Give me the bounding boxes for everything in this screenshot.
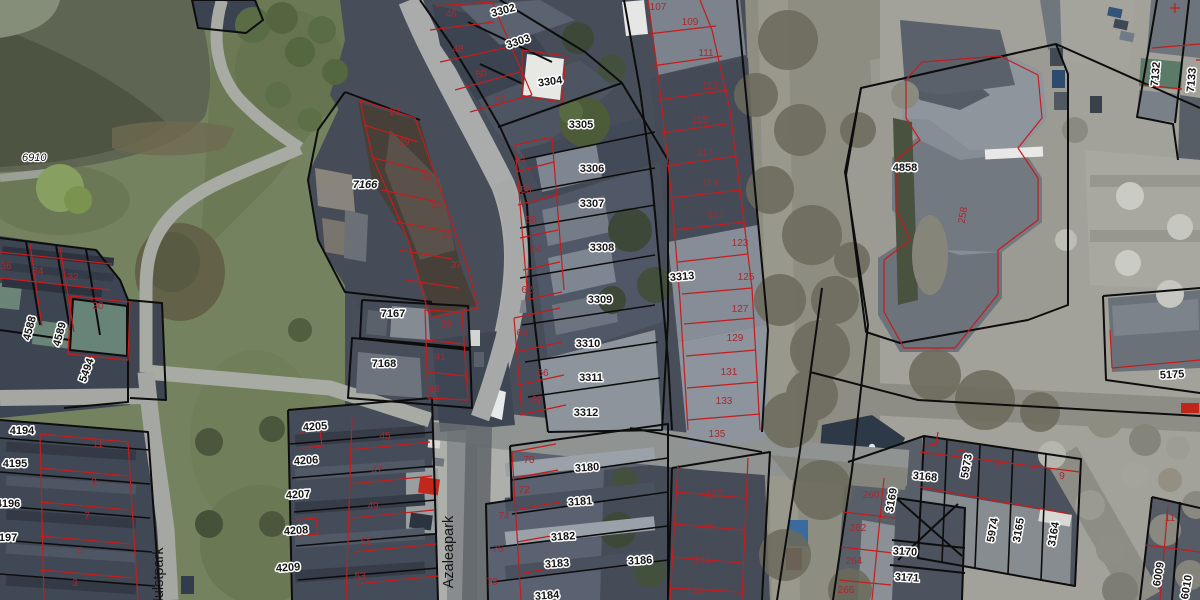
svg-text:129: 129 [727, 333, 744, 344]
svg-text:72: 72 [518, 485, 530, 496]
svg-text:115: 115 [692, 115, 708, 126]
svg-text:4205: 4205 [302, 420, 327, 434]
svg-text:78: 78 [486, 577, 498, 588]
svg-text:7: 7 [84, 511, 90, 522]
svg-text:70: 70 [523, 455, 535, 466]
svg-text:3168: 3168 [912, 470, 937, 484]
svg-text:45: 45 [379, 431, 391, 442]
svg-text:Hulstpark: Hulstpark [151, 547, 167, 600]
svg-text:3311: 3311 [579, 372, 603, 384]
svg-text:9: 9 [91, 477, 97, 488]
svg-text:53: 53 [354, 571, 366, 582]
svg-text:3313: 3313 [669, 270, 694, 284]
svg-text:141: 141 [694, 555, 711, 566]
svg-text:41: 41 [434, 352, 446, 363]
svg-text:260: 260 [863, 490, 880, 501]
svg-text:74: 74 [498, 511, 510, 522]
svg-text:3306: 3306 [580, 163, 604, 175]
svg-text:4858: 4858 [893, 162, 917, 174]
svg-text:39: 39 [440, 319, 452, 330]
svg-text:3181: 3181 [567, 495, 592, 509]
svg-text:4197: 4197 [0, 532, 17, 544]
svg-text:262: 262 [850, 523, 867, 534]
svg-text:36: 36 [0, 261, 12, 272]
svg-text:113: 113 [702, 81, 718, 92]
svg-text:35: 35 [441, 229, 453, 240]
svg-text:3312: 3312 [574, 407, 598, 419]
svg-text:47: 47 [371, 465, 383, 476]
svg-text:54: 54 [514, 154, 526, 165]
svg-text:34: 34 [32, 266, 44, 277]
svg-text:127: 127 [732, 304, 749, 315]
svg-text:43: 43 [428, 384, 440, 395]
svg-text:7133: 7133 [1185, 67, 1199, 92]
svg-text:111: 111 [698, 48, 714, 59]
svg-text:123: 123 [732, 238, 749, 249]
svg-text:56: 56 [520, 185, 532, 196]
svg-text:76: 76 [492, 544, 504, 555]
svg-text:109: 109 [682, 17, 699, 28]
svg-text:Azaleapark: Azaleapark [441, 515, 457, 588]
svg-text:11: 11 [93, 439, 104, 450]
svg-text:1: 1 [928, 452, 934, 463]
svg-text:133: 133 [716, 396, 733, 407]
svg-text:119: 119 [702, 178, 718, 189]
svg-text:32: 32 [67, 272, 79, 283]
svg-text:27: 27 [389, 107, 401, 118]
svg-text:131: 131 [721, 367, 738, 378]
svg-text:31: 31 [420, 171, 432, 182]
svg-text:46: 46 [445, 9, 457, 20]
svg-text:48: 48 [452, 44, 464, 55]
svg-text:4194: 4194 [10, 425, 35, 437]
svg-text:266: 266 [838, 585, 855, 596]
svg-text:135: 135 [709, 429, 726, 440]
svg-text:6910: 6910 [22, 152, 47, 164]
svg-text:7168: 7168 [372, 358, 396, 370]
svg-text:117: 117 [697, 148, 713, 159]
svg-text:4207: 4207 [285, 488, 310, 502]
svg-text:121: 121 [708, 210, 725, 221]
svg-text:64: 64 [516, 328, 528, 339]
svg-text:3186: 3186 [628, 554, 653, 567]
svg-text:3171: 3171 [894, 571, 919, 584]
svg-text:60: 60 [531, 244, 543, 255]
svg-text:3309: 3309 [588, 294, 612, 306]
svg-text:3: 3 [72, 578, 78, 589]
svg-text:7132: 7132 [1149, 61, 1163, 86]
svg-text:264: 264 [846, 556, 863, 567]
svg-text:3170: 3170 [892, 545, 917, 558]
svg-text:5175: 5175 [1160, 368, 1185, 381]
svg-text:4208: 4208 [283, 524, 308, 538]
svg-text:3180: 3180 [574, 461, 599, 475]
svg-text:7167: 7167 [381, 308, 405, 320]
svg-text:3182: 3182 [550, 530, 575, 544]
svg-text:4195: 4195 [3, 458, 27, 470]
svg-text:139: 139 [699, 522, 716, 533]
svg-text:4196: 4196 [0, 498, 20, 510]
svg-text:3310: 3310 [576, 338, 600, 350]
svg-text:125: 125 [738, 272, 755, 283]
svg-text:58: 58 [525, 215, 537, 226]
svg-text:37: 37 [450, 260, 462, 271]
svg-text:30: 30 [92, 301, 104, 312]
svg-text:107: 107 [650, 2, 667, 13]
svg-text:3308: 3308 [590, 242, 614, 254]
svg-text:143: 143 [687, 586, 704, 597]
svg-text:4206: 4206 [293, 454, 318, 468]
svg-text:3307: 3307 [580, 198, 604, 210]
svg-text:7: 7 [1029, 465, 1035, 476]
svg-text:33: 33 [431, 200, 443, 211]
svg-text:5: 5 [994, 459, 1000, 470]
svg-text:137: 137 [706, 489, 723, 500]
svg-text:9: 9 [1059, 471, 1065, 482]
svg-text:29: 29 [398, 137, 410, 148]
svg-text:62: 62 [521, 285, 533, 296]
svg-text:4209: 4209 [275, 561, 300, 575]
svg-text:3305: 3305 [569, 119, 593, 131]
svg-text:3183: 3183 [544, 557, 569, 571]
svg-text:68: 68 [531, 395, 543, 406]
svg-text:11: 11 [1165, 513, 1176, 524]
svg-text:5: 5 [77, 546, 83, 557]
svg-text:51: 51 [360, 537, 372, 548]
svg-text:66: 66 [537, 368, 549, 379]
svg-text:49: 49 [367, 501, 379, 512]
svg-text:3184: 3184 [534, 589, 560, 600]
svg-text:7166: 7166 [353, 179, 378, 191]
